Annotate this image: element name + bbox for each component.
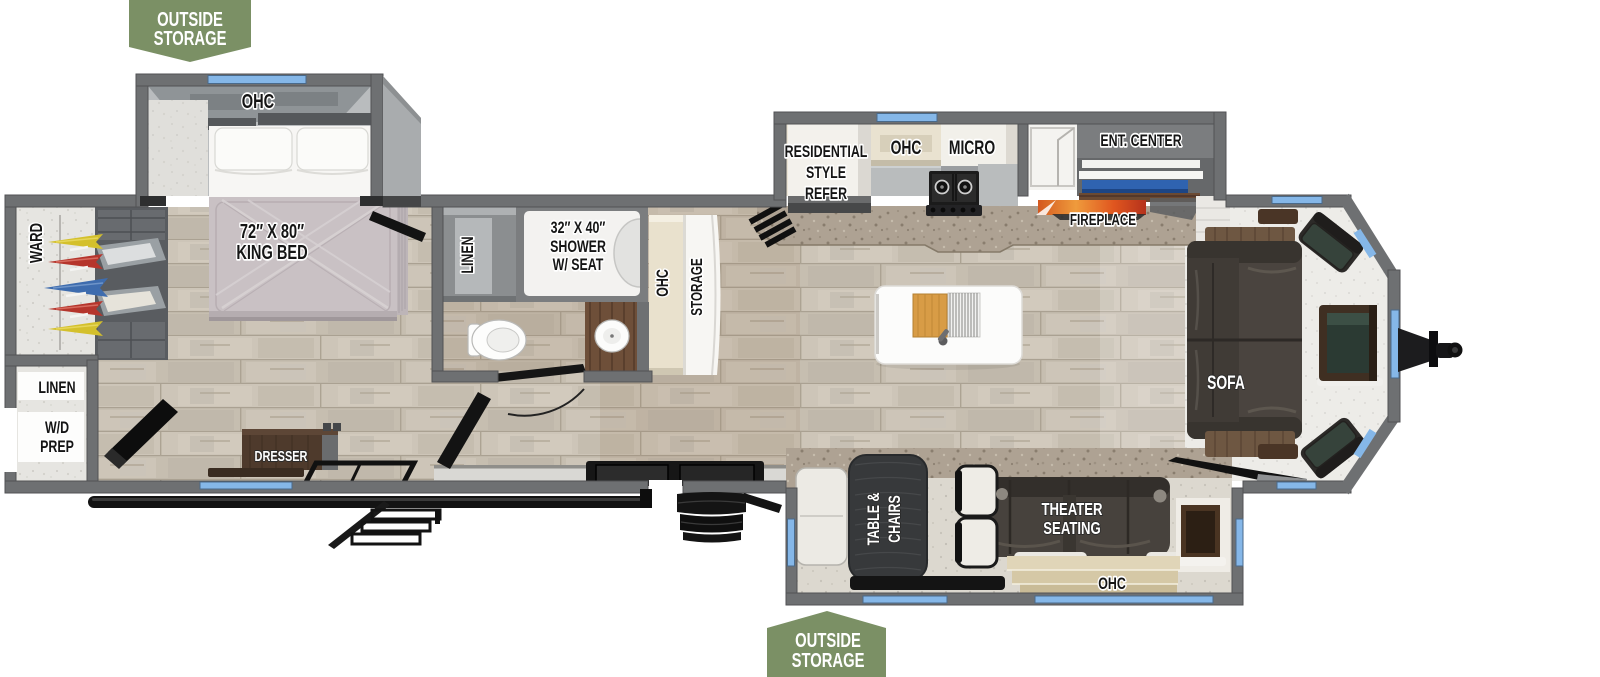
svg-text:72″ X 80″: 72″ X 80″	[240, 220, 305, 243]
svg-text:SHOWER: SHOWER	[550, 238, 606, 256]
svg-text:RESIDENTIAL: RESIDENTIAL	[785, 143, 868, 161]
svg-text:KING BED: KING BED	[236, 241, 307, 264]
svg-text:OHC: OHC	[242, 90, 275, 113]
svg-text:STYLE: STYLE	[806, 164, 846, 182]
svg-text:LINEN: LINEN	[38, 379, 75, 397]
svg-text:STORAGE: STORAGE	[687, 258, 705, 316]
svg-text:32″ X 40″: 32″ X 40″	[551, 219, 606, 237]
svg-text:STORAGE: STORAGE	[792, 649, 865, 672]
svg-text:LINEN: LINEN	[459, 236, 477, 273]
svg-text:SOFA: SOFA	[1207, 372, 1245, 394]
svg-text:WARD: WARD	[27, 223, 46, 263]
svg-text:DRESSER: DRESSER	[255, 447, 308, 464]
svg-text:OHC: OHC	[891, 137, 922, 159]
svg-text:CHAIRS: CHAIRS	[886, 495, 904, 543]
svg-text:THEATER: THEATER	[1041, 500, 1103, 519]
svg-text:TABLE &: TABLE &	[865, 492, 883, 545]
svg-text:STORAGE: STORAGE	[154, 27, 227, 50]
svg-text:OHC: OHC	[654, 269, 672, 297]
svg-text:OHC: OHC	[1098, 575, 1126, 593]
svg-text:MICRO: MICRO	[949, 137, 995, 159]
svg-text:REFER: REFER	[805, 185, 847, 203]
svg-text:PREP: PREP	[40, 438, 74, 456]
svg-text:W/ SEAT: W/ SEAT	[553, 256, 604, 274]
svg-text:W/D: W/D	[45, 419, 69, 437]
svg-text:FIREPLACE: FIREPLACE	[1070, 210, 1136, 228]
svg-text:SEATING: SEATING	[1043, 519, 1100, 538]
svg-text:ENT. CENTER: ENT. CENTER	[1100, 132, 1182, 150]
